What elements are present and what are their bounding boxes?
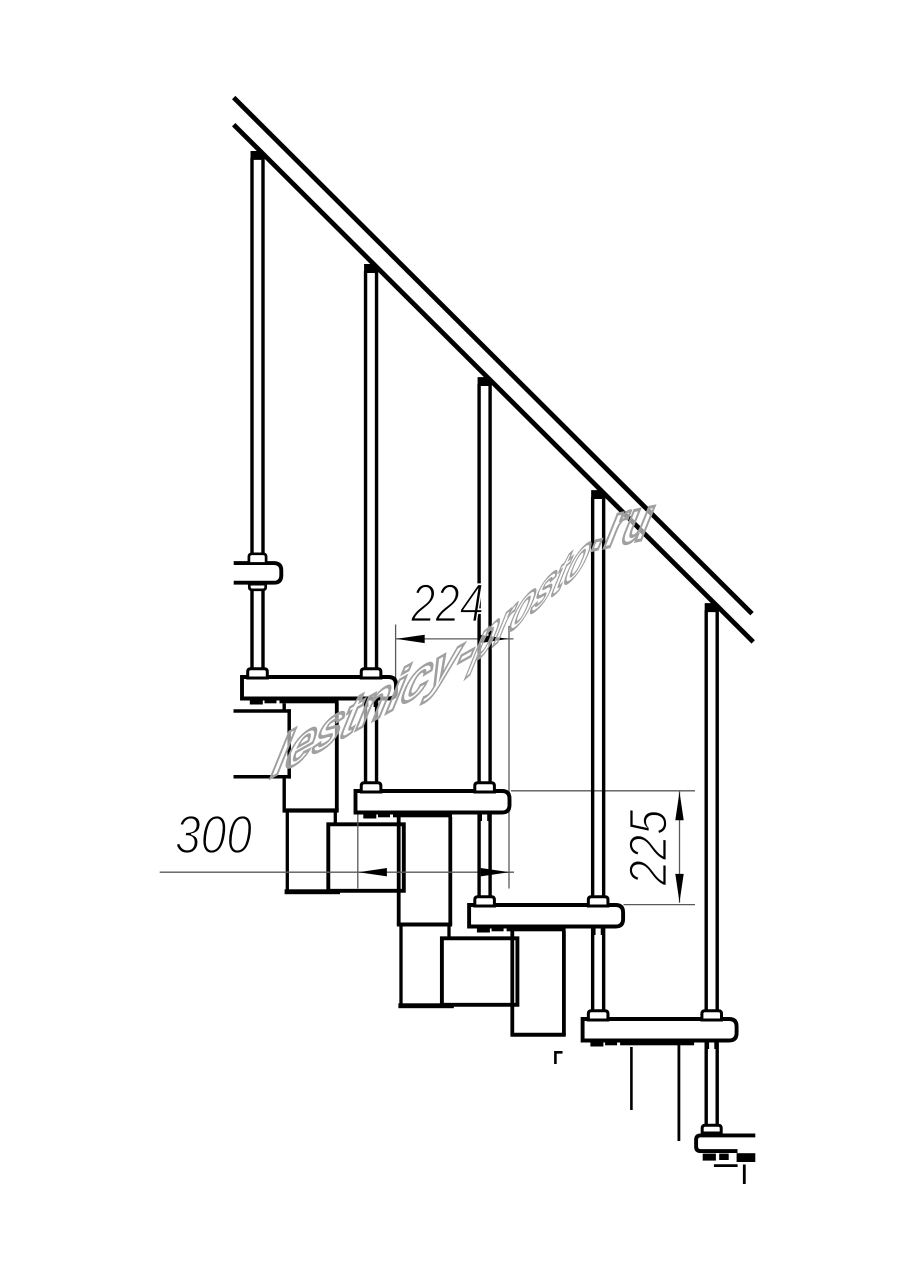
svg-text:225: 225 (619, 809, 679, 887)
svg-text:300: 300 (175, 805, 252, 865)
